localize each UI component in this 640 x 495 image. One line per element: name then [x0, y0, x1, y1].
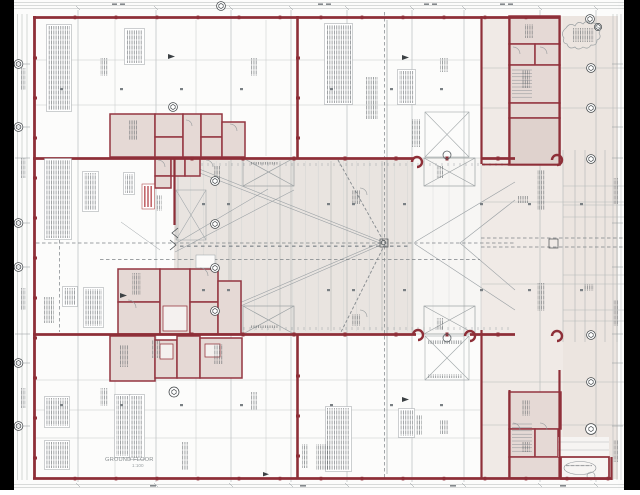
svg-text:1:100: 1:100: [132, 463, 144, 468]
svg-text:GROUND FLOOR: GROUND FLOOR: [105, 457, 154, 463]
